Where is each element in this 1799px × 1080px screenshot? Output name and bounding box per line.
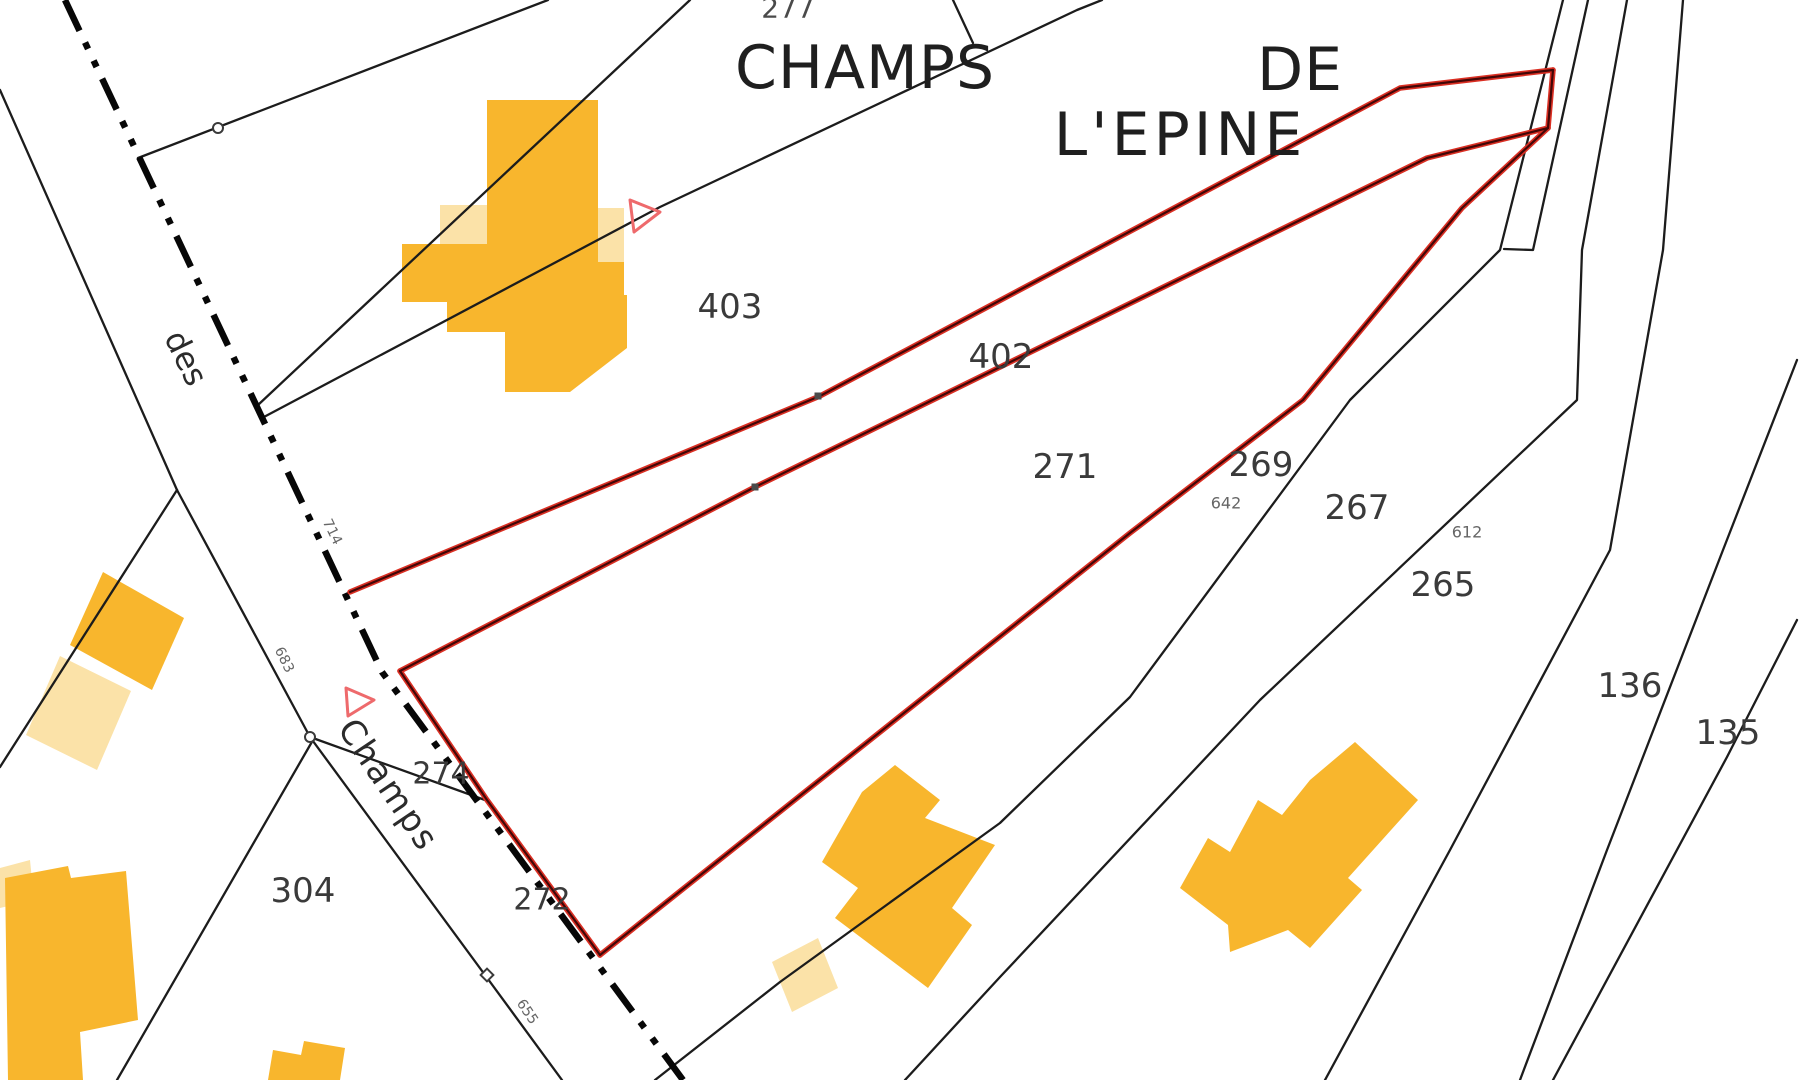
parcel-label-136: 136	[1598, 666, 1663, 706]
parcel-label-402: 402	[969, 337, 1034, 377]
parcel-boundary-line	[1553, 620, 1797, 1080]
parcel-label-271: 271	[1033, 447, 1098, 487]
ref-label-714: 714	[319, 516, 345, 547]
parcel-boundary-line	[1325, 0, 1683, 1080]
ref-label-655: 655	[513, 996, 541, 1027]
place-label-champs: CHAMPS	[735, 33, 995, 103]
building-top-main	[402, 100, 627, 392]
buildings-layer	[0, 100, 1418, 1080]
place-label-lepine: L'EPINE	[1054, 100, 1307, 170]
ref-label-642: 642	[1211, 494, 1242, 513]
parcel-label-135: 135	[1696, 713, 1761, 753]
selected-parcel-outline-halo	[600, 128, 1548, 955]
vertex-circle-marker	[213, 123, 223, 133]
parcel-label-304: 304	[271, 871, 336, 911]
cadastral-map: 277CHAMPSDEL'EPINE4034022712692672651361…	[0, 0, 1799, 1080]
parcel-label-403: 403	[698, 287, 763, 327]
vertex-circle-marker	[305, 732, 315, 742]
parcel-boundary-line	[0, 90, 177, 490]
road-label-des: des	[157, 324, 216, 392]
building-southwest-main	[5, 866, 138, 1080]
building-bottom-small	[268, 1041, 345, 1080]
parcel-label-265: 265	[1411, 565, 1476, 605]
building-center-annex	[772, 938, 838, 1012]
parcel-label-269: 269	[1229, 445, 1294, 485]
place-label-277: 277	[761, 0, 814, 25]
selected-parcel-outline-core	[600, 128, 1548, 955]
boundary-point-marker	[752, 484, 759, 491]
building-east-main	[1180, 742, 1418, 952]
cadastral-map-viewport[interactable]: 277CHAMPSDEL'EPINE4034022712692672651361…	[0, 0, 1799, 1080]
ref-label-612: 612	[1452, 523, 1483, 542]
building-center-main	[822, 765, 995, 988]
place-label-de: DE	[1257, 35, 1343, 105]
building-west-lower	[26, 656, 131, 770]
boundary-point-marker	[815, 393, 822, 400]
parcel-label-274: 274	[412, 757, 469, 792]
survey-triangle-west	[346, 688, 374, 716]
building-top-annex-right	[598, 208, 624, 262]
parcel-label-272: 272	[513, 883, 570, 918]
parcel-label-267: 267	[1325, 488, 1390, 528]
parcel-boundary-line	[138, 0, 548, 158]
